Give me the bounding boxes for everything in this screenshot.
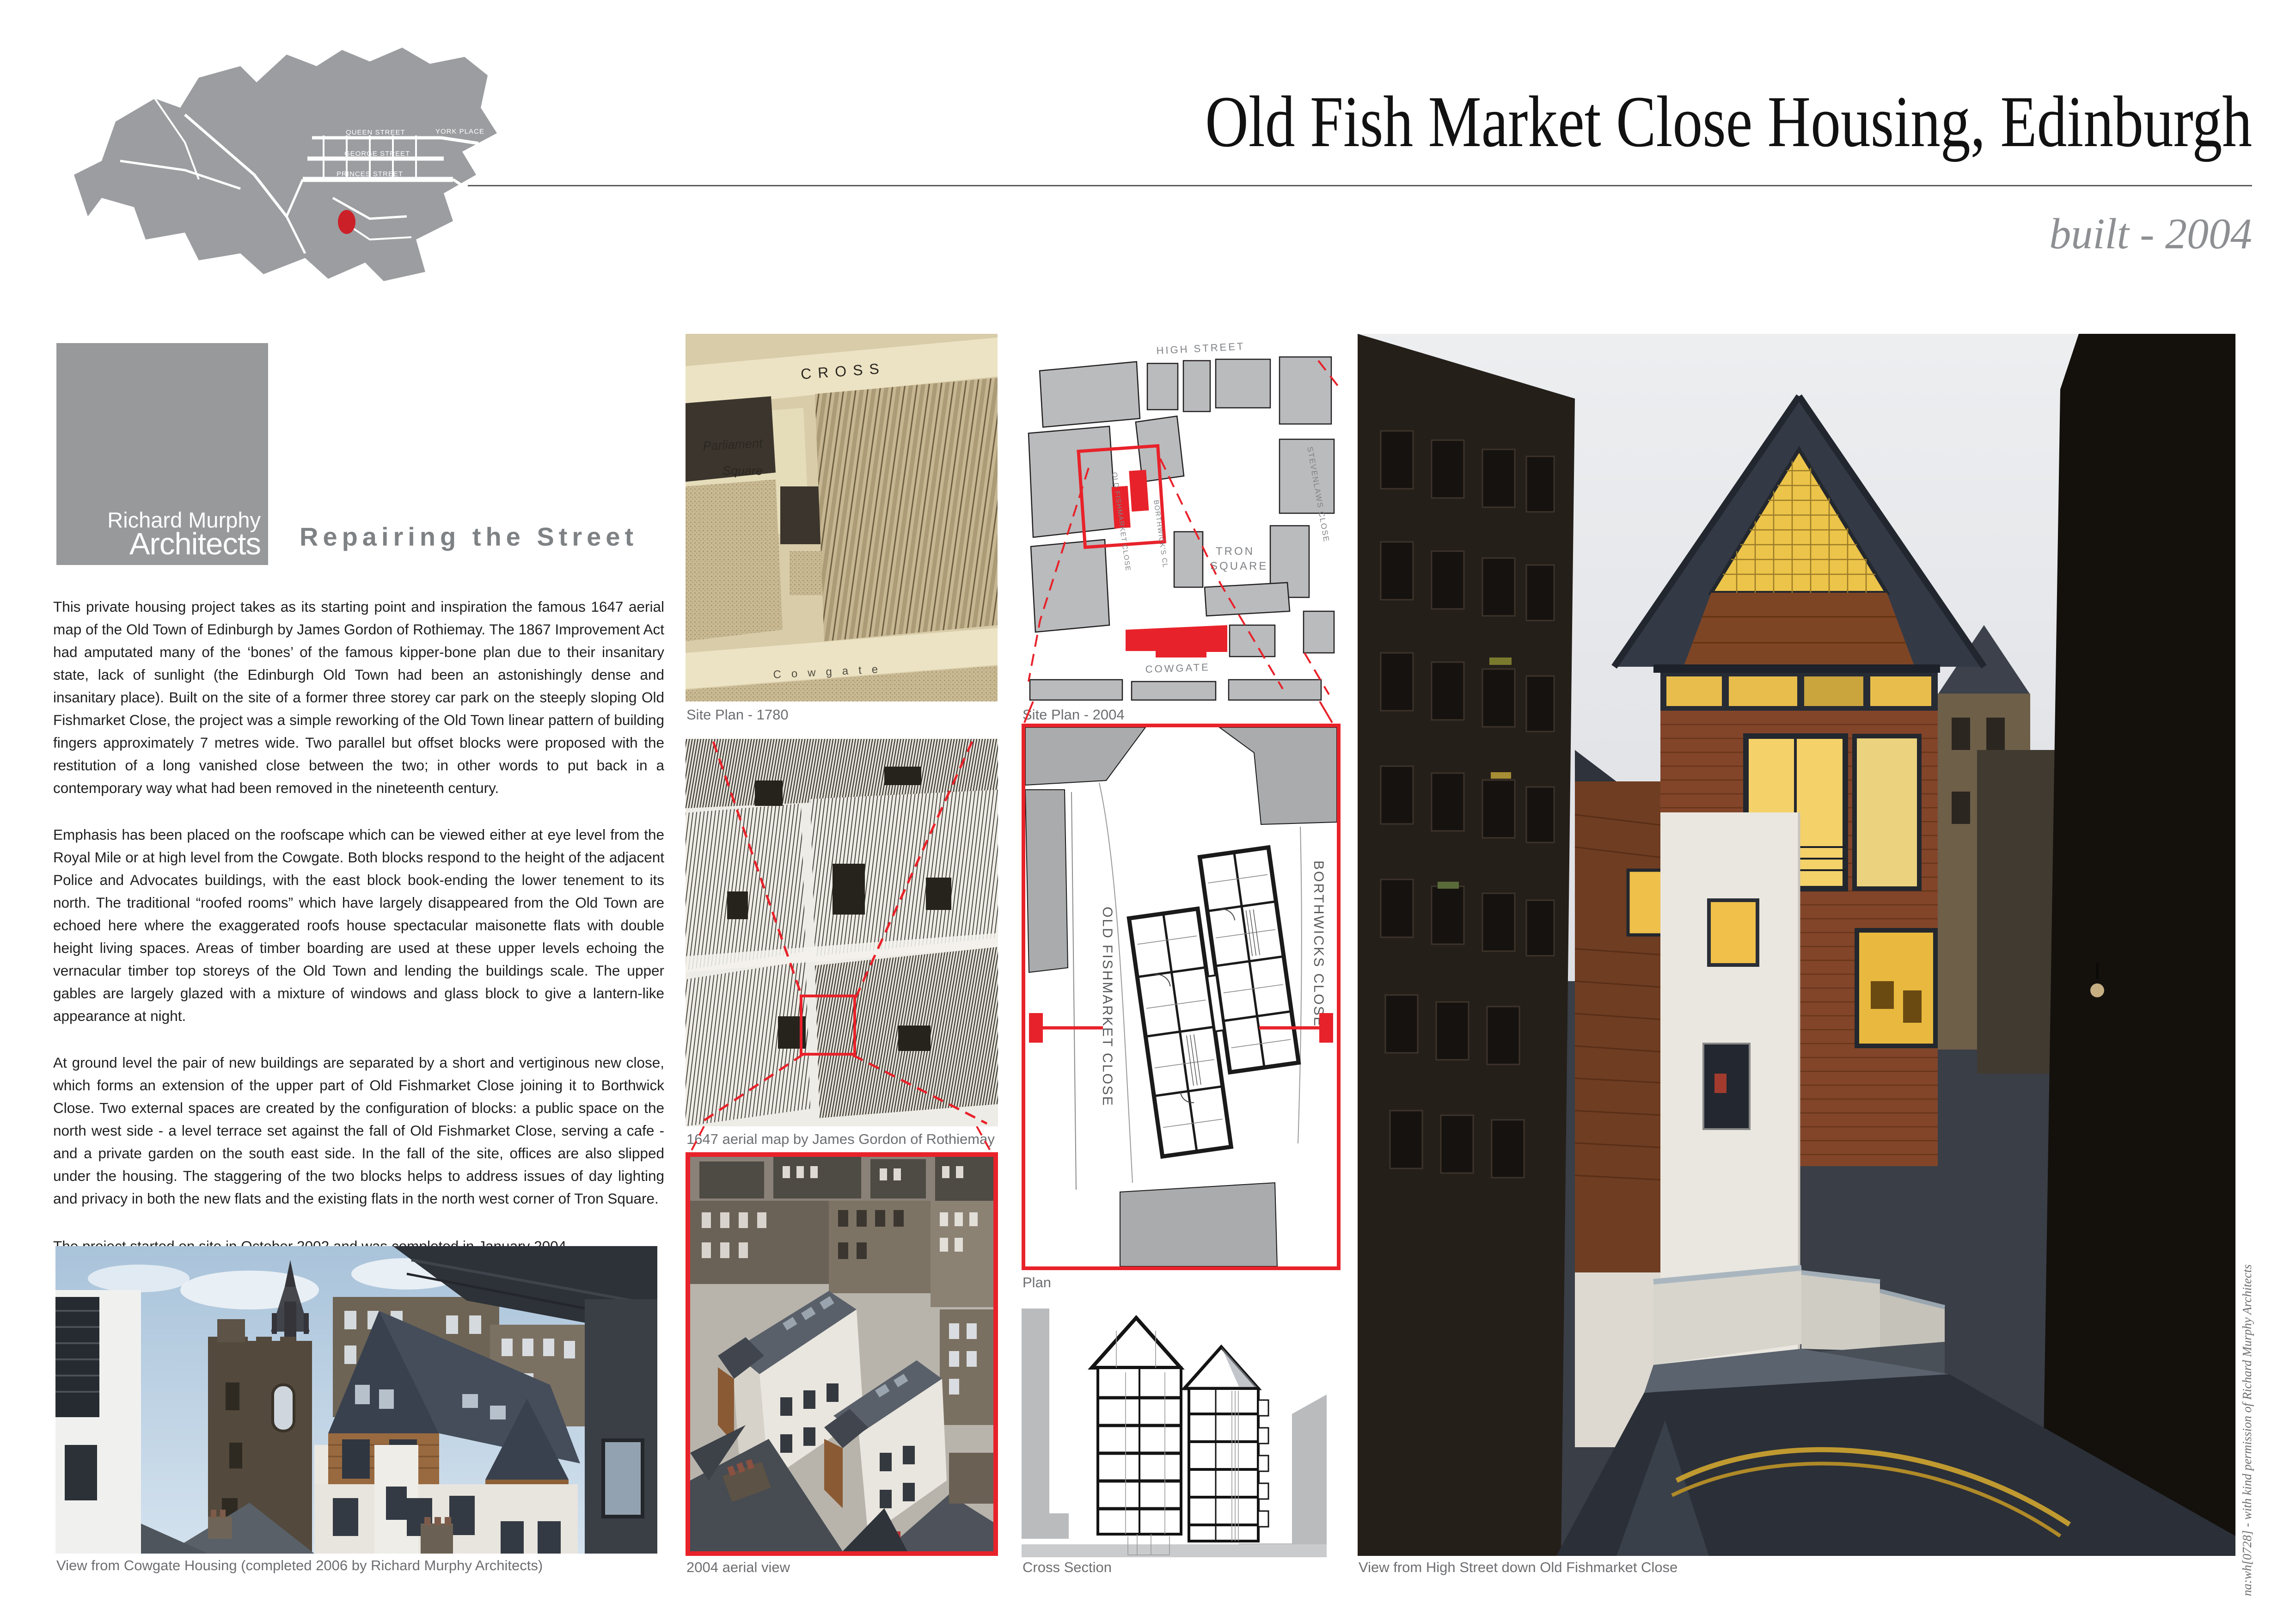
aerial-2004-figure: [686, 1152, 998, 1556]
old-tenement-left: [1358, 334, 1575, 1556]
project-description: This private housing project takes as it…: [53, 596, 664, 1282]
label-plan-old-fishmarket: OLD FISHMARKET CLOSE: [1100, 907, 1115, 1107]
cross-section-figure: [1022, 1303, 1327, 1557]
label-square: SQUARE: [1210, 560, 1268, 572]
label-square: Square: [722, 464, 763, 478]
photo-credit: na:wh[0728] - with kind permission of Ri…: [2240, 1245, 2254, 1596]
zoom-connector-bottom: [686, 1126, 998, 1152]
caption-site-plan-1780: Site Plan - 1780: [686, 707, 789, 723]
header-divider-line: [468, 185, 2252, 186]
paragraph-2: Emphasis has been placed on the roofscap…: [53, 823, 664, 1027]
label-tron: TRON: [1216, 545, 1255, 558]
paragraph-1: This private housing project takes as it…: [53, 596, 664, 799]
aerial-1647-figure: [686, 739, 998, 1126]
caption-aerial-2004: 2004 aerial view: [686, 1559, 790, 1576]
foreground-left-wall: [55, 1290, 141, 1554]
caption-plan: Plan: [1022, 1274, 1051, 1291]
dark-right-building: [2042, 334, 2235, 1556]
plan-figure: OLD FISHMARKET CLOSE BORTHWICKS CLOSE: [1022, 724, 1341, 1270]
project-subtitle: Repairing the Street: [300, 522, 638, 552]
main-photo-old-fishmarket-close: [1358, 334, 2235, 1556]
edinburgh-locator-map: QUEEN STREET GEORGE STREET PRINCES STREE…: [46, 22, 508, 293]
street-lamp: [2090, 983, 2104, 997]
lit-window-living: [1857, 930, 1935, 1046]
caption-cowgate-view: View from Cowgate Housing (completed 200…: [56, 1557, 543, 1574]
logo-line2: Architects: [107, 530, 261, 559]
label-queen-street: QUEEN STREET: [346, 129, 405, 136]
zoom-connector-top: [1022, 701, 1341, 724]
caption-high-street-view: View from High Street down Old Fishmarke…: [1359, 1559, 1678, 1576]
paragraph-3: At ground level the pair of new building…: [53, 1051, 664, 1210]
richard-murphy-architects-logo: Richard Murphy Architects: [56, 343, 268, 565]
site-location-dot: [338, 210, 355, 234]
label-george-street: GEORGE STREET: [344, 150, 410, 158]
label-cowgate: COWGATE: [1145, 661, 1210, 675]
site-plan-1780-figure: CROSS Parliament Square Cowgate: [686, 334, 998, 701]
label-plan-borthwicks: BORTHWICKS CLOSE: [1311, 860, 1326, 1027]
label-princes-street: PRINCES STREET: [337, 170, 403, 178]
locator-map-graphic: QUEEN STREET GEORGE STREET PRINCES STREE…: [46, 22, 508, 293]
page-title: Old Fish Market Close Housing, Edinburgh: [975, 86, 2252, 159]
built-date: built - 2004: [2049, 209, 2252, 259]
lit-window-white-wall: [1709, 900, 1757, 965]
caption-cross-section: Cross Section: [1022, 1559, 1112, 1576]
site-plan-2004-figure: HIGH STREET COWGATE TRON SQUARE STEVENLA…: [1022, 334, 1341, 701]
cowgate-housing-photo: [55, 1246, 657, 1554]
label-york-place: YORK PLACE: [435, 128, 484, 135]
